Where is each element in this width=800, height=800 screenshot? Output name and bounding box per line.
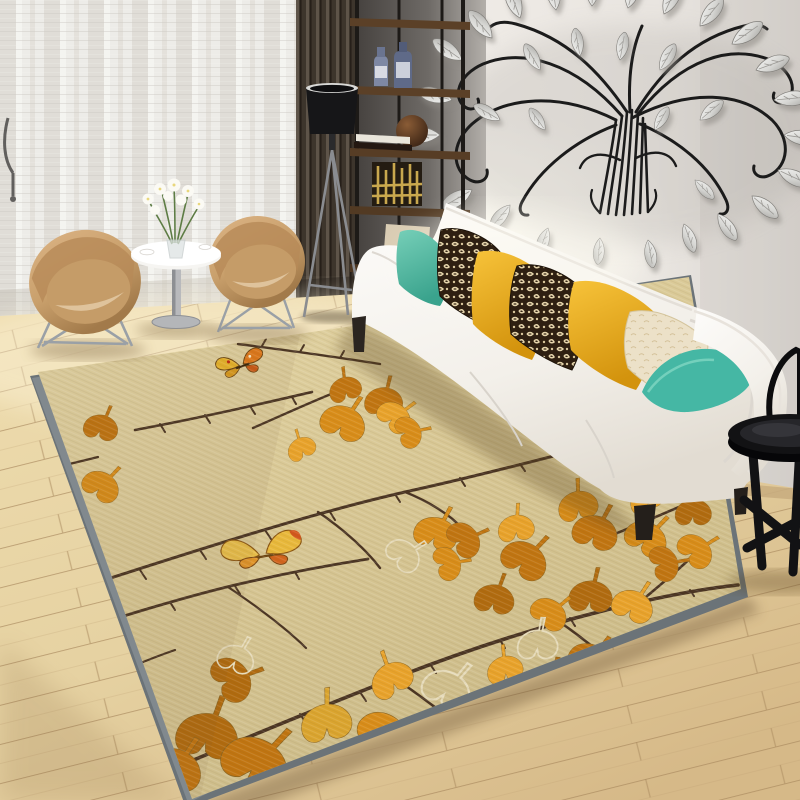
teacup-right: [199, 245, 211, 250]
wood-slat-panel: [296, 0, 358, 300]
living-room-scene: [0, 0, 800, 800]
gold-ornament: [372, 162, 422, 206]
teacup-left: [140, 249, 154, 255]
sofa-leg-left: [352, 316, 366, 352]
scene-canvas: [0, 0, 800, 800]
